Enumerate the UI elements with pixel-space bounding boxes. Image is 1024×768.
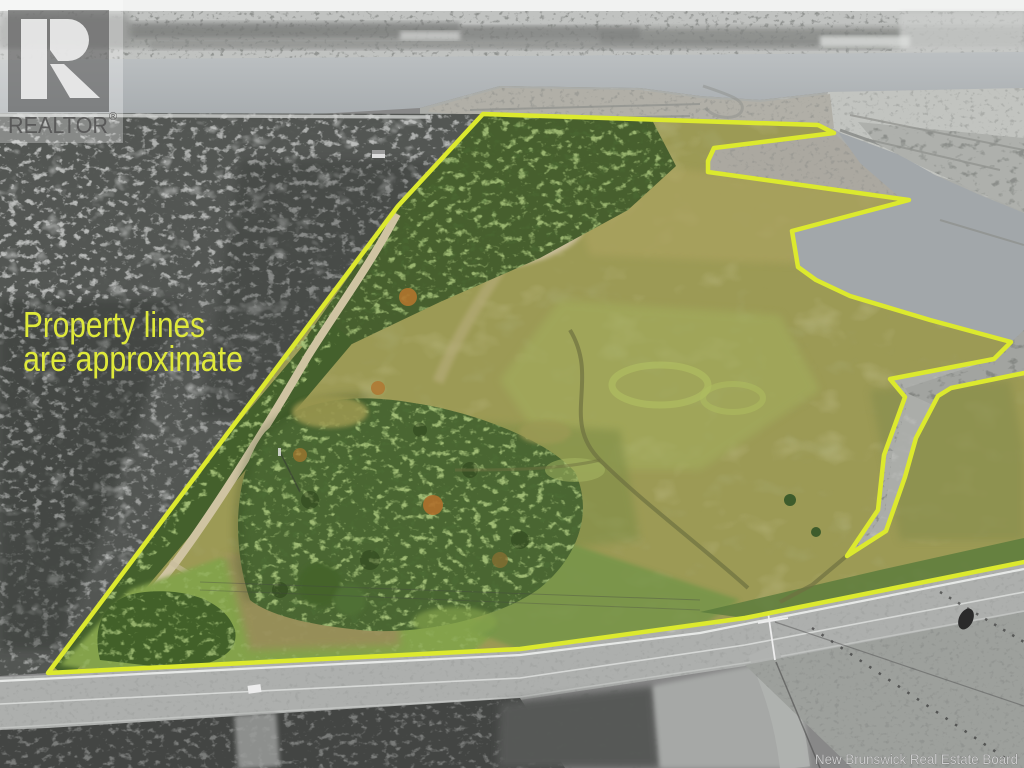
svg-text:New Brunswick Real Estate Boar: New Brunswick Real Estate Board — [815, 751, 1018, 767]
svg-text:are approximate: are approximate — [23, 338, 243, 379]
svg-text:®: ® — [109, 111, 117, 123]
svg-text:REALTOR: REALTOR — [8, 112, 108, 138]
